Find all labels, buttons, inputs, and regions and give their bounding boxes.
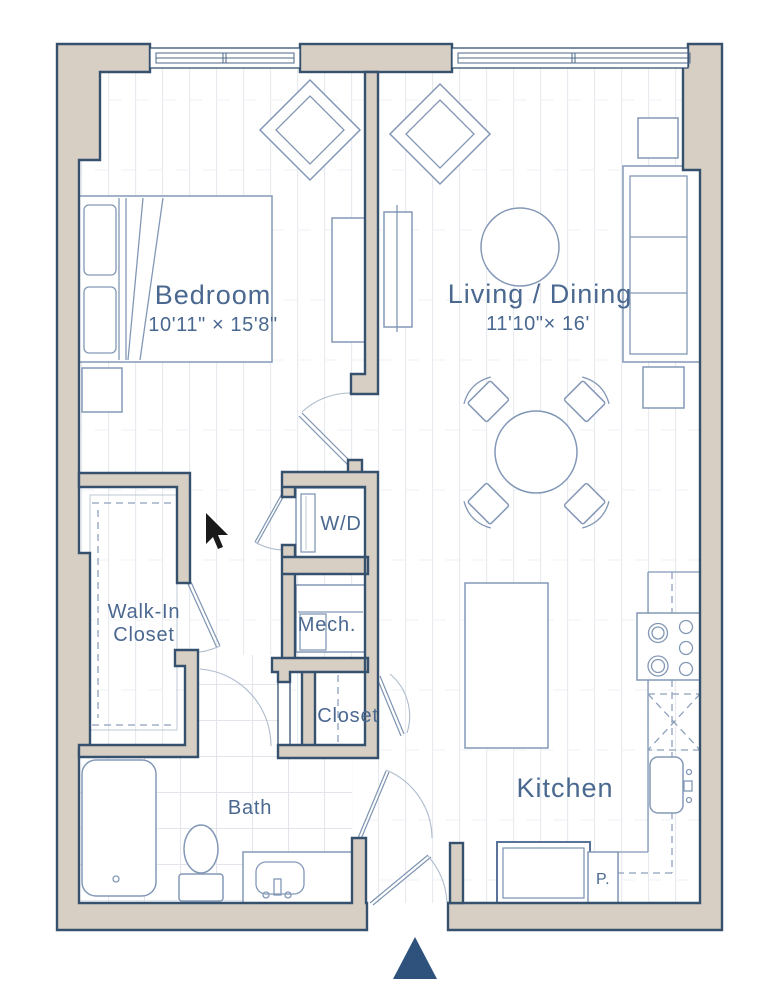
hall-tile-floor <box>198 655 282 752</box>
end-table <box>638 118 678 158</box>
floor-plan-page: Bedroom 10'11" × 15'8" Living / Dining 1… <box>0 0 780 992</box>
nightstand <box>82 368 122 412</box>
mechanical-label: Mech. <box>298 614 356 636</box>
tv-console <box>384 205 412 332</box>
bedroom-label: Bedroom <box>155 280 272 310</box>
laundry-label: W/D <box>320 513 361 535</box>
living-window <box>452 48 690 68</box>
bath-label: Bath <box>228 797 272 819</box>
chase-wall <box>278 682 290 745</box>
living-dining-label: Living / Dining <box>448 279 633 309</box>
bed <box>78 196 272 362</box>
end-table <box>643 367 684 408</box>
refrigerator <box>497 842 590 903</box>
walk-in-closet-label-line1: Walk-In <box>108 601 181 623</box>
dining-table <box>495 411 577 493</box>
entry-wall-stub <box>450 843 463 903</box>
entry-triangle-marker <box>393 937 437 979</box>
sofa <box>623 166 700 362</box>
walk-in-closet-label-line2: Closet <box>113 624 175 646</box>
kitchen-label: Kitchen <box>516 773 613 803</box>
round-table <box>481 208 559 286</box>
vanity-sink <box>243 852 352 903</box>
bedroom-dimensions: 10'11" × 15'8" <box>148 314 277 336</box>
bathtub <box>82 760 156 896</box>
pantry-label: P. <box>596 871 610 888</box>
closet-label: Closet <box>317 705 379 727</box>
dresser <box>332 218 367 342</box>
top-wall-pier <box>300 44 452 72</box>
living-dining-dimensions: 11'10"× 16' <box>486 313 590 335</box>
cooktop <box>637 613 700 680</box>
floor-plan-image: Bedroom 10'11" × 15'8" Living / Dining 1… <box>0 0 780 992</box>
bedroom-window <box>150 48 300 68</box>
kitchen-island <box>465 583 548 748</box>
